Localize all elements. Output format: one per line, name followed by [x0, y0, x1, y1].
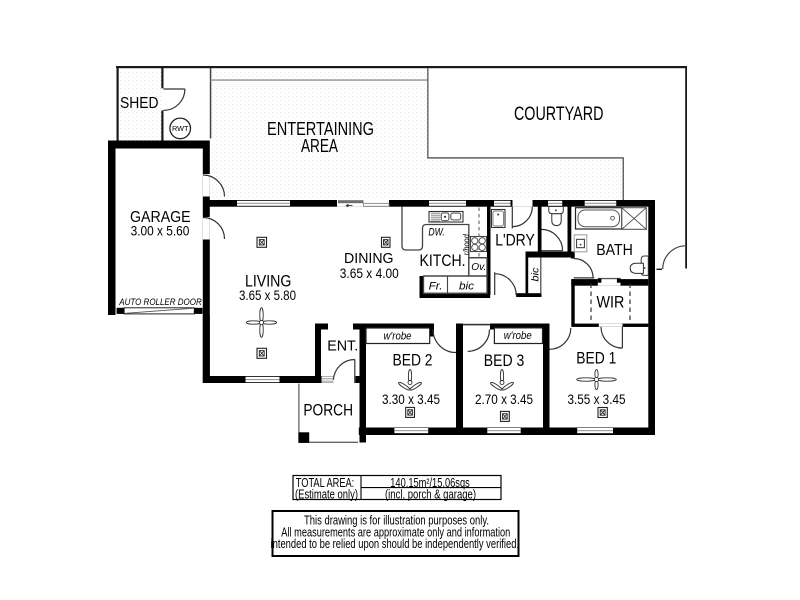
svg-text:bic: bic — [459, 281, 475, 293]
svg-text:AREA: AREA — [301, 136, 338, 156]
svg-text:Ov.: Ov. — [471, 261, 486, 273]
svg-text:3.30 x 3.45: 3.30 x 3.45 — [382, 392, 440, 407]
svg-text:DINING: DINING — [344, 251, 394, 267]
svg-text:KITCH.: KITCH. — [420, 252, 466, 270]
svg-text:L'DRY: L'DRY — [495, 231, 535, 250]
svg-text:WIR: WIR — [597, 293, 625, 311]
svg-text:intended to be relied upon sho: intended to be relied upon should be ind… — [271, 536, 520, 551]
svg-text:w'robe: w'robe — [384, 330, 412, 342]
svg-text:PORCH: PORCH — [303, 400, 353, 419]
svg-text:BED 2: BED 2 — [393, 350, 433, 369]
svg-text:BATH: BATH — [596, 242, 633, 259]
svg-text:AUTO ROLLER DOOR: AUTO ROLLER DOOR — [118, 297, 202, 307]
svg-text:ENT.: ENT. — [327, 338, 358, 355]
svg-text:2.70 x 3.45: 2.70 x 3.45 — [475, 392, 533, 407]
svg-text:COURTYARD: COURTYARD — [514, 103, 604, 125]
svg-text:3.00 x 5.60: 3.00 x 5.60 — [131, 224, 190, 239]
svg-text:3.65 x 4.00: 3.65 x 4.00 — [340, 266, 399, 281]
svg-text:(incl. porch & garage): (incl. porch & garage) — [385, 487, 476, 501]
svg-text:BED 1: BED 1 — [576, 349, 616, 368]
svg-text:SHED: SHED — [120, 95, 159, 112]
svg-text:DW.: DW. — [428, 227, 445, 239]
svg-text:w'robe: w'robe — [504, 330, 532, 342]
svg-text:(Estimate only): (Estimate only) — [295, 487, 358, 501]
svg-text:BED 3: BED 3 — [484, 351, 525, 370]
svg-text:bic: bic — [530, 267, 542, 282]
svg-text:RWT: RWT — [172, 124, 189, 133]
svg-text:3.65 x 5.80: 3.65 x 5.80 — [239, 287, 296, 303]
svg-text:3.55 x 3.45: 3.55 x 3.45 — [568, 392, 626, 407]
svg-text:Fr.: Fr. — [429, 281, 443, 293]
